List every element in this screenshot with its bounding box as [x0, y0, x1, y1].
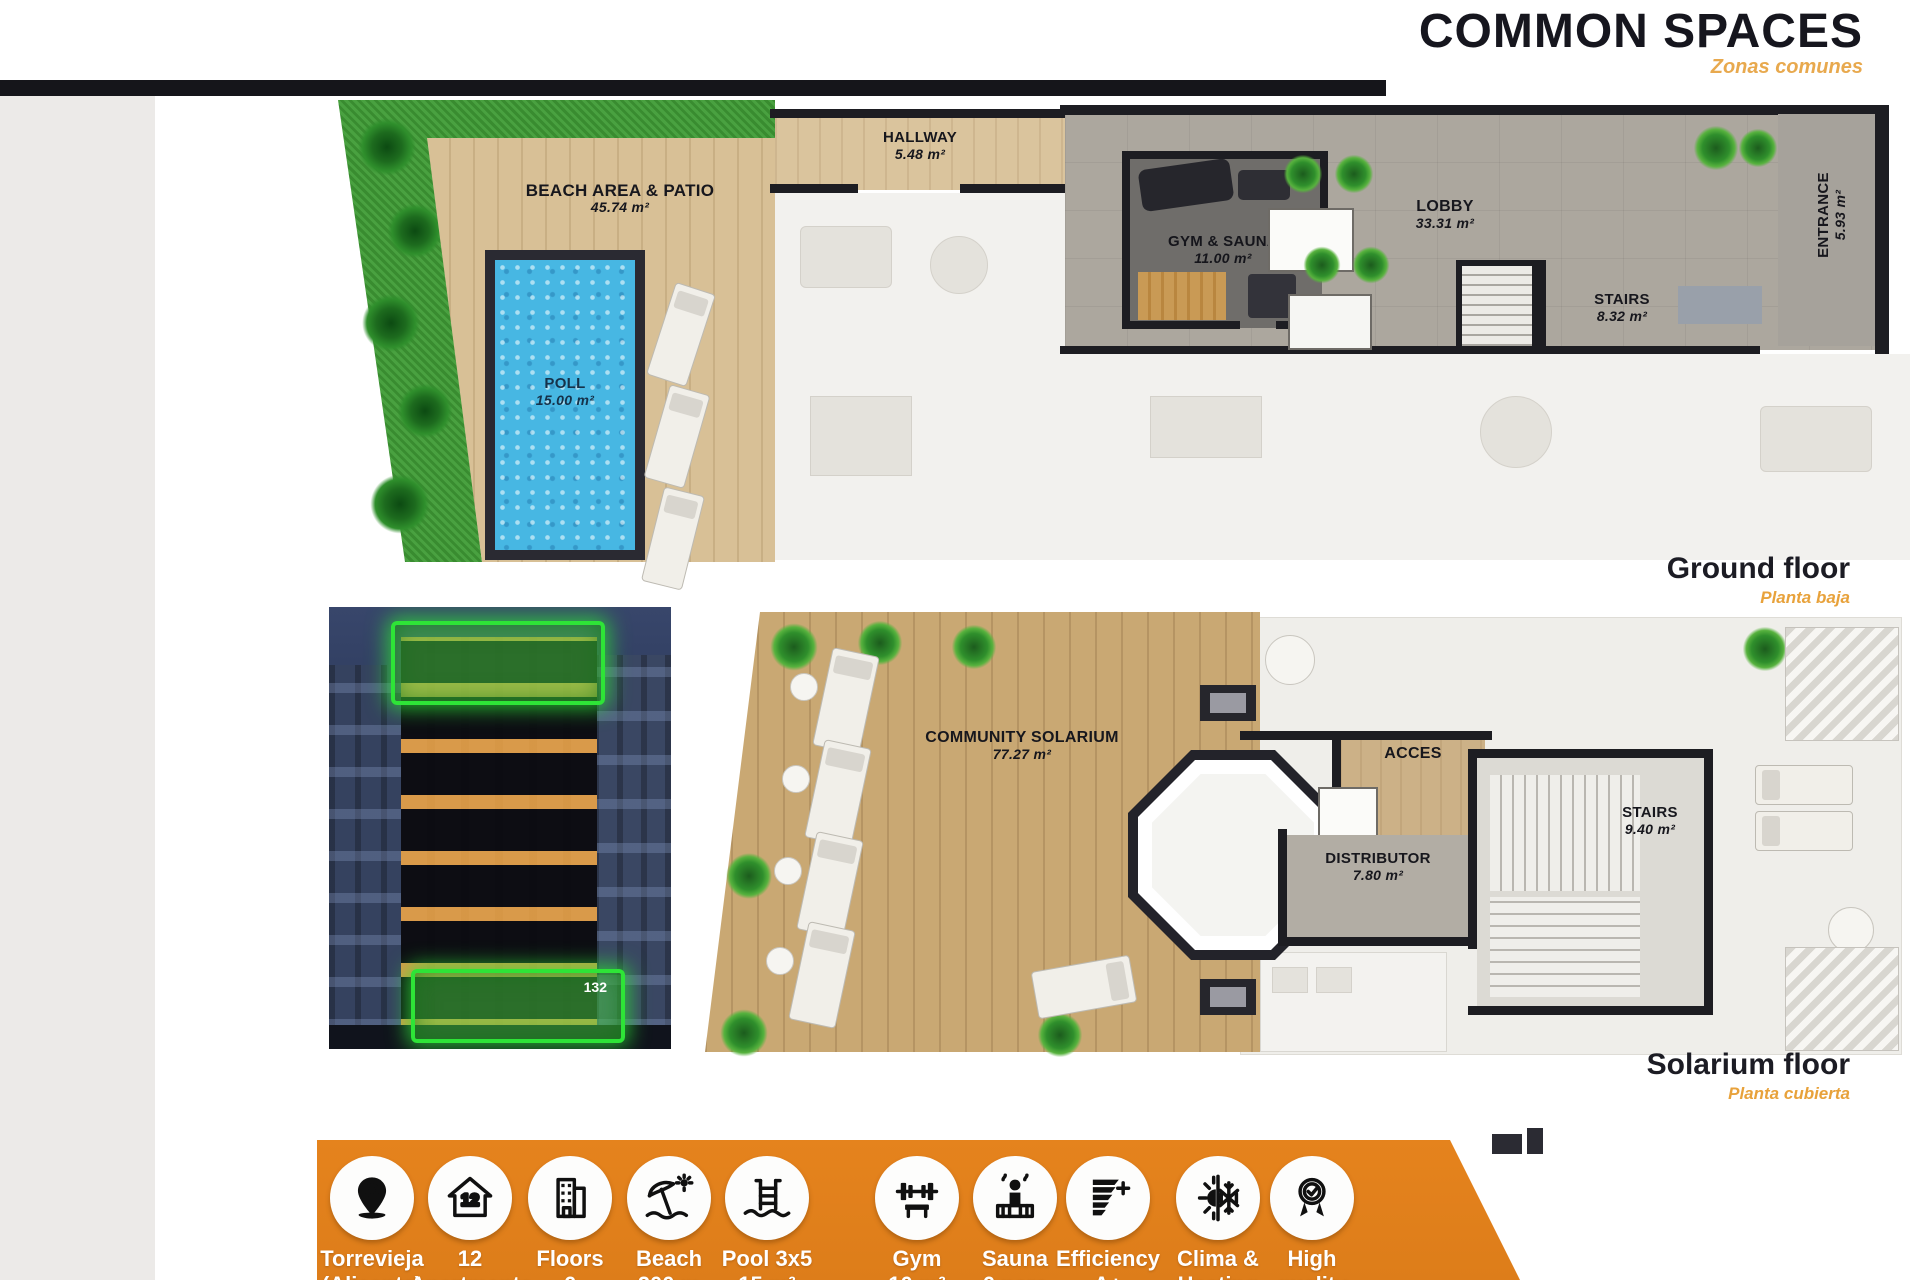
staircase-steps: [1490, 897, 1640, 997]
efficiency-icon: [1066, 1156, 1150, 1240]
ground-floor-caption: Ground floor: [1667, 552, 1850, 586]
top-divider-bar: [0, 80, 1386, 96]
side-table: [774, 857, 802, 885]
palm-tree-icon: [348, 108, 426, 186]
side-table: [766, 947, 794, 975]
feature-quality: Highquality: [1252, 1156, 1372, 1280]
palm-tree-icon: [360, 464, 440, 544]
solarium-floor-caption-es: Planta cubierta: [1728, 1084, 1850, 1104]
room-label-distributor: DISTRIBUTOR 7.80 m²: [1292, 851, 1464, 883]
solarium-floor-caption: Solarium floor: [1647, 1048, 1850, 1082]
left-margin-strip: [0, 96, 155, 1280]
plant-icon: [718, 845, 780, 907]
wall: [1278, 829, 1287, 946]
elevator: [1318, 787, 1378, 839]
wall: [770, 109, 1070, 118]
stair-hatch: [1785, 627, 1899, 741]
location-pin-icon: [330, 1156, 414, 1240]
vent-box-inner: [1210, 693, 1246, 713]
pool-ladder-icon: [725, 1156, 809, 1240]
wall: [1122, 321, 1240, 329]
furniture: [1272, 967, 1308, 993]
wall: [1468, 749, 1713, 758]
vent-box-inner: [1210, 987, 1246, 1007]
plant-icon: [1328, 148, 1380, 200]
furniture: [930, 236, 988, 294]
wall: [960, 184, 1070, 193]
furniture: [1150, 396, 1262, 458]
feature-pool: Pool 3x515 m²: [707, 1156, 827, 1280]
high-quality-icon: [1270, 1156, 1354, 1240]
plant-icon: [762, 615, 826, 679]
feature-efficiency: EfficiencyA+: [1048, 1156, 1168, 1280]
room-label-hallway: HALLWAY 5.48 m²: [800, 130, 1040, 162]
wall: [1538, 260, 1546, 352]
side-table: [790, 673, 818, 701]
sauna-bench: [1138, 272, 1226, 320]
wall: [1060, 105, 1888, 115]
door-mat: [1678, 286, 1762, 324]
room-label-solarium: COMMUNITY SOLARIUM 77.27 m²: [922, 729, 1122, 763]
palm-tree-icon: [388, 374, 462, 448]
page: { "header": { "title": "COMMON SPACES", …: [0, 0, 1920, 1280]
ground-floor-plan: BEACH AREA & PATIO 45.74 m² POLL 15.00 m…: [330, 96, 1912, 566]
features-bar: Torrevieja(Alicante) 12 12Apartments Flo…: [317, 1140, 1523, 1280]
wall: [1060, 346, 1760, 354]
page-title: COMMON SPACES: [1419, 4, 1863, 59]
side-table: [782, 765, 810, 793]
partial-logo: [1527, 1128, 1543, 1154]
plant-icon: [712, 1001, 776, 1065]
sauna-icon: [973, 1156, 1057, 1240]
round-table: [1265, 635, 1315, 685]
page-subtitle: Zonas comunes: [1711, 56, 1863, 79]
plant-icon: [1297, 240, 1347, 290]
room-label-lobby: LOBBY 33.31 m²: [1370, 198, 1520, 232]
solarium-floor-plan: COMMUNITY SOLARIUM 77.27 m² ACCES DISTRI…: [700, 607, 1912, 1057]
wall: [1278, 937, 1478, 946]
furniture: [810, 396, 912, 476]
sun-lounger: [1755, 811, 1853, 851]
plant-icon: [1732, 122, 1784, 174]
palm-tree-icon: [352, 284, 430, 362]
furniture: [800, 226, 892, 288]
wall: [1704, 749, 1713, 1015]
furniture: [1760, 406, 1872, 472]
room-label-pool: POLL 15.00 m²: [490, 376, 640, 408]
room-label-stairs-ground: STAIRS 8.32 m²: [1562, 292, 1682, 324]
house-count-icon: 12: [428, 1156, 512, 1240]
unit-badge: 132: [584, 979, 607, 995]
wall: [1468, 1006, 1713, 1015]
furniture: [1480, 396, 1552, 468]
wall: [770, 184, 858, 193]
wall: [1332, 731, 1492, 740]
room-label-stairs-solarium: STAIRS 9.40 m²: [1595, 805, 1705, 837]
plant-icon: [1277, 148, 1329, 200]
stair-hatch: [1785, 947, 1899, 1051]
svg-text:12: 12: [461, 1192, 479, 1210]
ground-floor-caption-es: Planta baja: [1760, 588, 1850, 608]
building-photo: 132: [329, 607, 671, 1049]
staircase: [1456, 260, 1538, 352]
sun-lounger: [1755, 765, 1853, 805]
plant-icon: [944, 617, 1004, 677]
highlight-ground: 132: [411, 969, 625, 1043]
beach-umbrella-icon: [627, 1156, 711, 1240]
room-label-entrance: ENTRANCE 5.93 m²: [1816, 125, 1860, 305]
wall: [1240, 731, 1340, 740]
building-floors-icon: [528, 1156, 612, 1240]
neighbor-building: [329, 665, 407, 1029]
wall: [1468, 749, 1477, 949]
wall: [1875, 105, 1889, 354]
clima-heating-icon: [1176, 1156, 1260, 1240]
room-label-acces: ACCES: [1348, 745, 1478, 763]
elevator: [1288, 294, 1372, 350]
gym-barbell-icon: [875, 1156, 959, 1240]
partial-logo: [1492, 1134, 1522, 1154]
furniture: [1316, 967, 1352, 993]
room-label-beach: BEACH AREA & PATIO 45.74 m²: [470, 181, 770, 216]
highlight-roof: [391, 621, 605, 705]
plant-icon: [1346, 240, 1396, 290]
